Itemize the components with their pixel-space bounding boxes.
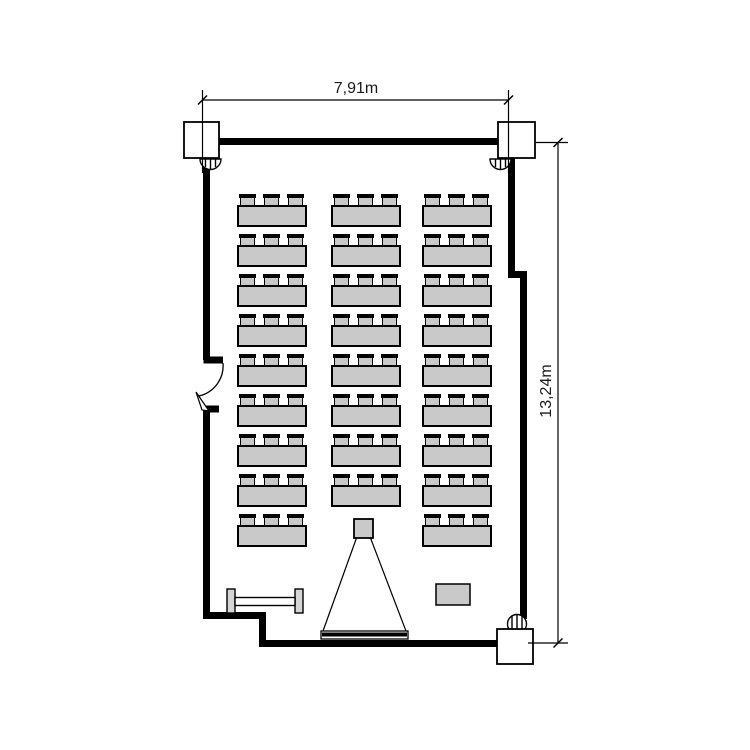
desk — [422, 514, 492, 549]
desk-table — [237, 405, 307, 427]
desk — [331, 474, 401, 509]
desk-table — [422, 525, 492, 547]
desk-table — [422, 325, 492, 347]
desk — [422, 354, 492, 389]
desk — [237, 274, 307, 309]
desk-table — [237, 285, 307, 307]
desk-table — [331, 325, 401, 347]
desk-table — [331, 365, 401, 387]
desk — [237, 514, 307, 549]
desk-table — [422, 285, 492, 307]
desk — [237, 314, 307, 349]
desk — [237, 394, 307, 429]
desk-table — [331, 485, 401, 507]
desk — [331, 314, 401, 349]
desk-table — [422, 405, 492, 427]
desk — [237, 434, 307, 469]
desk-layer — [0, 0, 750, 750]
desk — [237, 354, 307, 389]
desk — [422, 314, 492, 349]
desk — [331, 274, 401, 309]
desk — [422, 474, 492, 509]
desk — [331, 194, 401, 229]
desk-table — [331, 285, 401, 307]
desk-table — [237, 325, 307, 347]
desk — [237, 234, 307, 269]
desk — [422, 234, 492, 269]
desk-table — [422, 445, 492, 467]
height-dimension-label: 13,24m — [537, 343, 557, 439]
desk — [331, 354, 401, 389]
desk — [331, 434, 401, 469]
desk — [331, 234, 401, 269]
desk-table — [422, 205, 492, 227]
desk-table — [331, 205, 401, 227]
desk-table — [237, 365, 307, 387]
desk — [237, 194, 307, 229]
desk — [422, 194, 492, 229]
desk-table — [237, 485, 307, 507]
desk — [237, 474, 307, 509]
desk-table — [331, 245, 401, 267]
desk-table — [331, 445, 401, 467]
desk-table — [331, 405, 401, 427]
floor-plan-canvas: 7,91m 13,24m — [0, 0, 750, 750]
desk — [331, 394, 401, 429]
desk — [422, 434, 492, 469]
desk — [422, 274, 492, 309]
desk-table — [422, 485, 492, 507]
width-dimension-label: 7,91m — [303, 79, 409, 99]
desk-table — [237, 445, 307, 467]
desk-table — [422, 365, 492, 387]
desk-table — [237, 205, 307, 227]
desk — [422, 394, 492, 429]
desk-table — [237, 525, 307, 547]
desk-table — [237, 245, 307, 267]
desk-table — [422, 245, 492, 267]
